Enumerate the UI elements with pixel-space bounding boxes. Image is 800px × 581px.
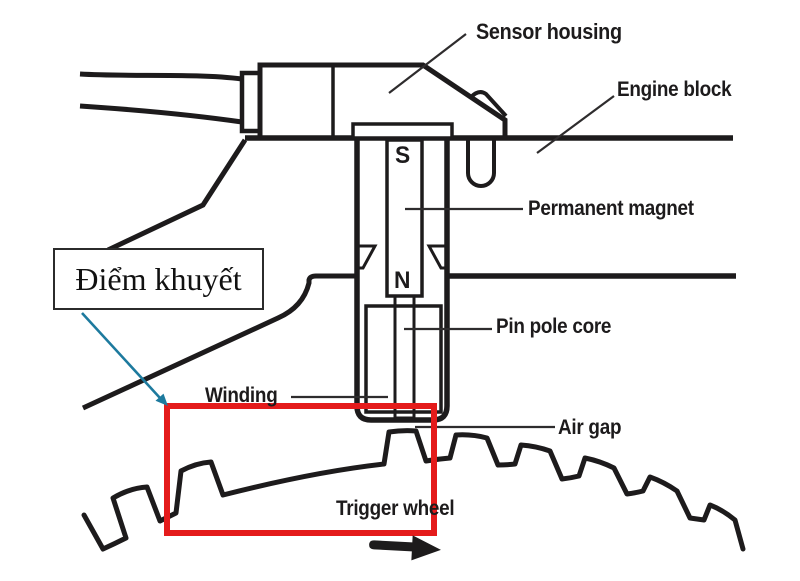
label-winding: Winding xyxy=(205,385,277,406)
engine-block-left-contour xyxy=(108,140,245,250)
sensor-wire-bottom xyxy=(80,106,242,122)
mounting-bolt xyxy=(468,140,494,186)
sensor-flange xyxy=(353,124,452,138)
magnet-pole-south: S xyxy=(395,144,410,168)
leader-engine-block xyxy=(537,96,614,153)
callout-arrow-line xyxy=(82,313,160,398)
connector-outline xyxy=(242,73,260,131)
label-pin-pole-core: Pin pole core xyxy=(496,316,611,337)
sensor-diagram: Sensor housing Engine block Permanent ma… xyxy=(0,0,800,581)
label-trigger-wheel: Trigger wheel xyxy=(336,498,454,519)
pin-pole-core-shape xyxy=(395,296,414,418)
tube-barb-left xyxy=(359,246,375,268)
missing-tooth-callout-text: Điểm khuyết xyxy=(75,261,241,298)
label-permanent-magnet: Permanent magnet xyxy=(528,198,694,219)
label-air-gap: Air gap xyxy=(558,417,621,438)
label-sensor-housing: Sensor housing xyxy=(476,21,622,43)
label-engine-block: Engine block xyxy=(617,79,731,100)
rotation-arrow-icon xyxy=(368,533,441,562)
magnet-pole-north: N xyxy=(394,269,410,293)
missing-tooth-callout: Điểm khuyết xyxy=(53,248,264,310)
tube-barb-right xyxy=(429,246,445,268)
housing-bump xyxy=(471,92,506,116)
sensor-wire-top xyxy=(80,74,242,79)
